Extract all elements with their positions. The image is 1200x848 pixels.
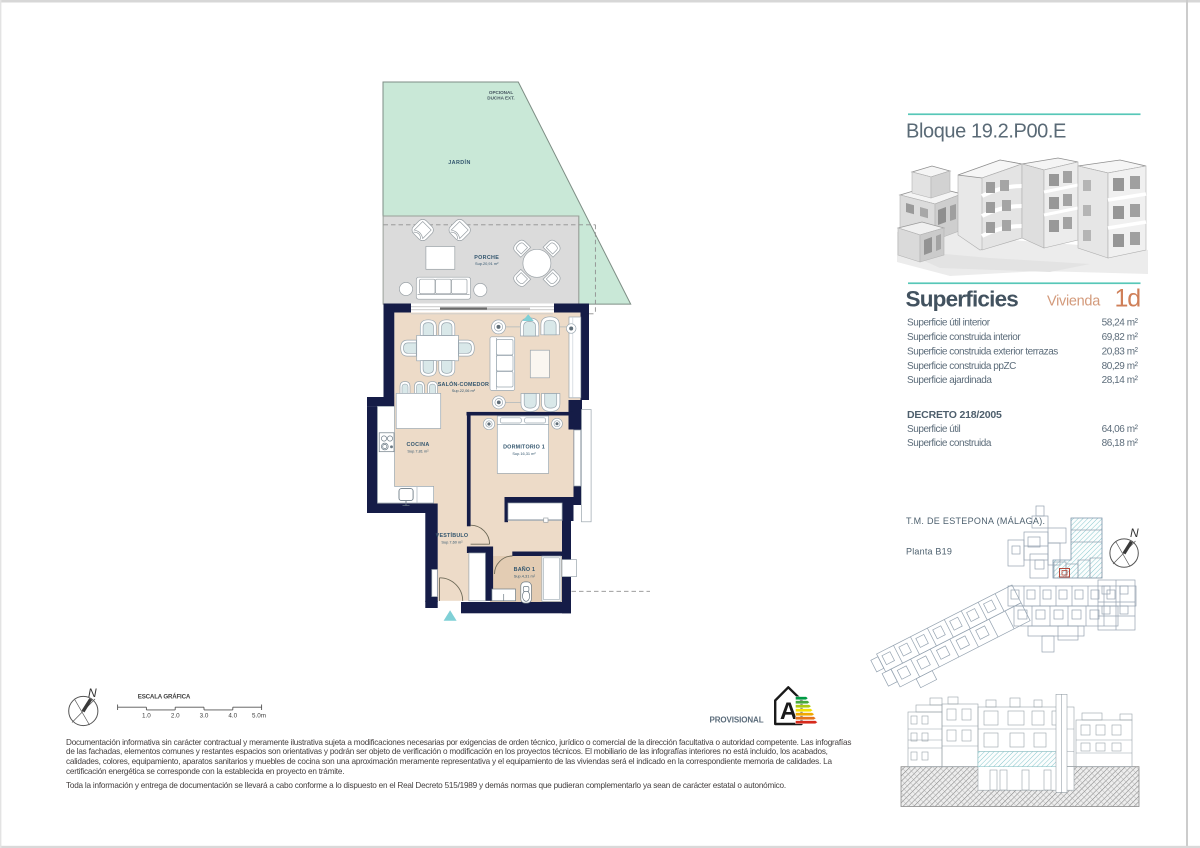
svg-text:Bloque 19.2.P00.E: Bloque 19.2.P00.E [906, 121, 1066, 143]
svg-text:86,18 m²: 86,18 m² [1102, 438, 1139, 449]
svg-text:SALÓN-COMEDOR: SALÓN-COMEDOR [438, 380, 489, 388]
svg-text:Sup.22,06 m²: Sup.22,06 m² [452, 388, 476, 393]
svg-text:Sup.7,81 m²: Sup.7,81 m² [407, 449, 429, 454]
svg-text:Superficie útil: Superficie útil [907, 424, 961, 435]
svg-text:PROVISIONAL: PROVISIONAL [710, 716, 764, 725]
svg-text:BAÑO 1: BAÑO 1 [514, 566, 536, 573]
svg-text:Superficie construida: Superficie construida [907, 438, 992, 449]
svg-text:A: A [780, 698, 797, 725]
svg-text:Vivienda: Vivienda [1047, 294, 1101, 310]
svg-text:COCINA: COCINA [406, 442, 429, 448]
svg-text:2.0: 2.0 [171, 713, 180, 720]
svg-text:1.0: 1.0 [142, 713, 151, 720]
svg-text:1d: 1d [1115, 285, 1141, 313]
svg-text:20,83 m²: 20,83 m² [1102, 347, 1139, 358]
svg-text:DORMITORIO 1: DORMITORIO 1 [503, 444, 545, 450]
svg-text:VESTÍBULO: VESTÍBULO [436, 531, 469, 539]
svg-text:Superficies: Superficies [906, 287, 1019, 312]
svg-text:69,82 m²: 69,82 m² [1102, 332, 1139, 343]
svg-text:JARDÍN: JARDÍN [448, 158, 470, 166]
svg-text:OPCIONAL: OPCIONAL [489, 90, 513, 95]
svg-text:Sup.20,91 m²: Sup.20,91 m² [475, 261, 499, 266]
svg-text:4.0: 4.0 [228, 713, 237, 720]
svg-text:DUCHA EXT.: DUCHA EXT. [487, 96, 514, 101]
svg-text:T.M. DE ESTEPONA (MÁLAGA).: T.M. DE ESTEPONA (MÁLAGA). [906, 516, 1045, 526]
svg-text:80,29 m²: 80,29 m² [1102, 361, 1139, 372]
svg-text:3.0: 3.0 [200, 713, 209, 720]
svg-text:64,06 m²: 64,06 m² [1102, 424, 1139, 435]
svg-text:28,14 m²: 28,14 m² [1102, 375, 1139, 386]
svg-text:DECRETO 218/2005: DECRETO 218/2005 [907, 409, 1002, 421]
svg-text:Superficie construida ppZC: Superficie construida ppZC [907, 361, 1016, 372]
svg-text:Sup.4,31 m²: Sup.4,31 m² [514, 574, 536, 579]
svg-text:Superficie ajardinada: Superficie ajardinada [907, 375, 992, 386]
svg-text:Superficie construida interior: Superficie construida interior [907, 332, 1021, 343]
svg-text:Superficie construida exterior: Superficie construida exterior terrazas [907, 347, 1058, 358]
svg-text:58,24 m²: 58,24 m² [1102, 318, 1139, 329]
svg-text:Sup.7,60 m²: Sup.7,60 m² [441, 540, 463, 545]
svg-text:Sup.16,31 m²: Sup.16,31 m² [512, 451, 536, 456]
svg-text:N: N [1130, 526, 1139, 540]
svg-text:N: N [88, 686, 97, 700]
svg-text:5.0m: 5.0m [252, 713, 266, 720]
svg-text:Planta B19: Planta B19 [906, 547, 952, 557]
svg-text:Superficie útil interior: Superficie útil interior [907, 318, 991, 329]
svg-text:ESCALA GRÁFICA: ESCALA GRÁFICA [138, 694, 191, 701]
